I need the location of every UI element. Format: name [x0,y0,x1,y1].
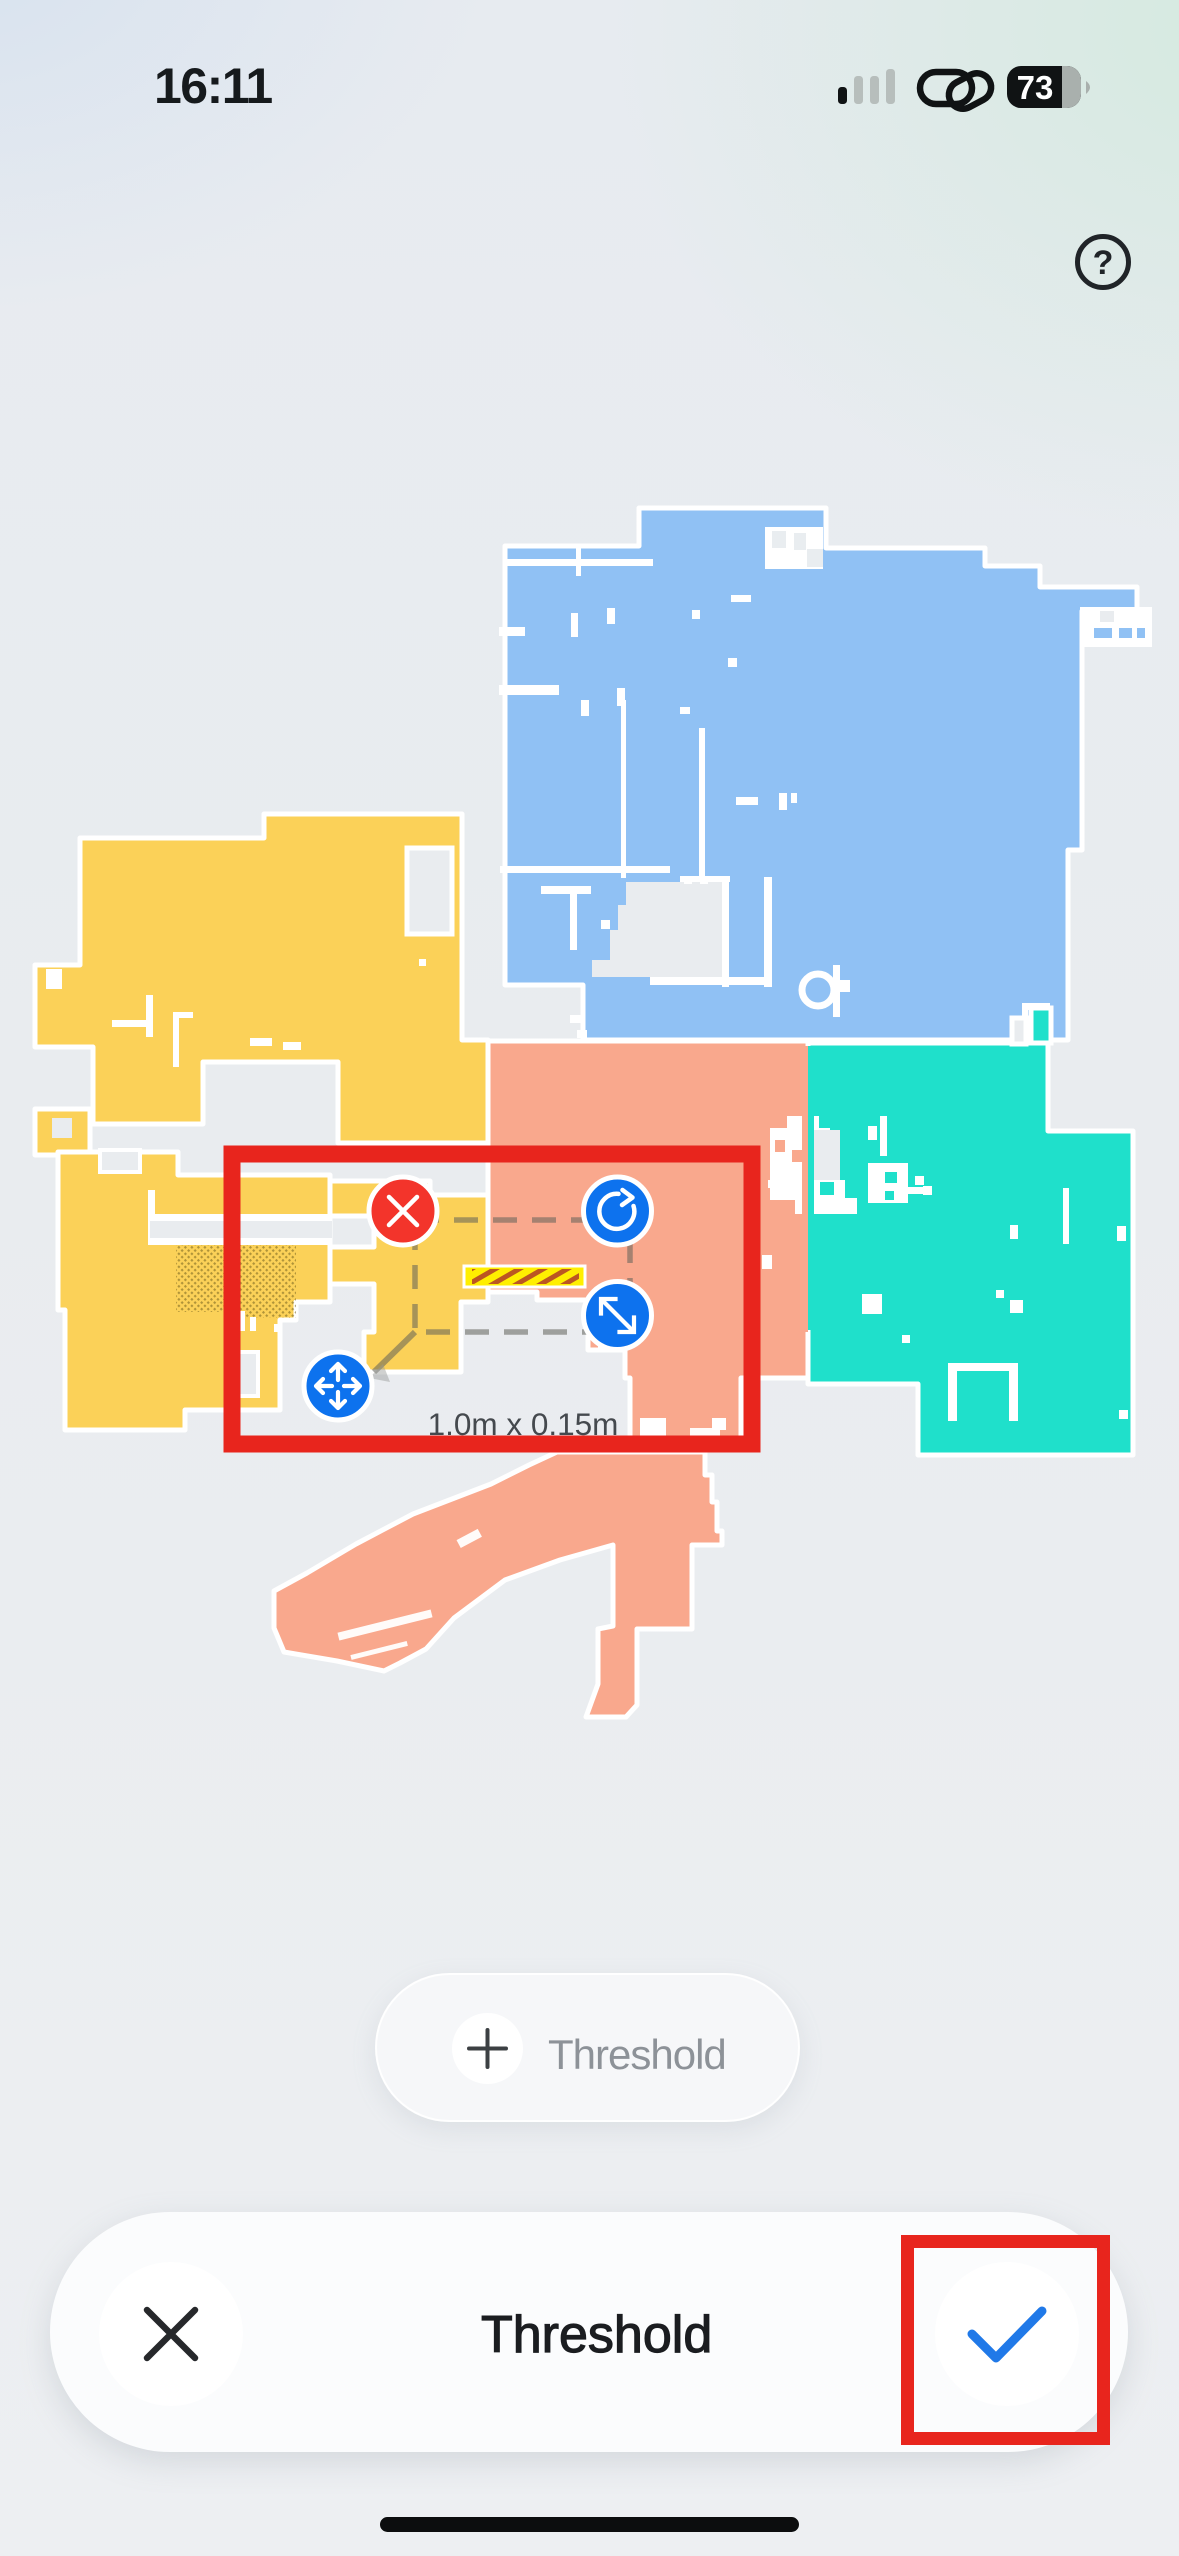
svg-text:1.0m x 0.15m: 1.0m x 0.15m [428,1406,619,1442]
